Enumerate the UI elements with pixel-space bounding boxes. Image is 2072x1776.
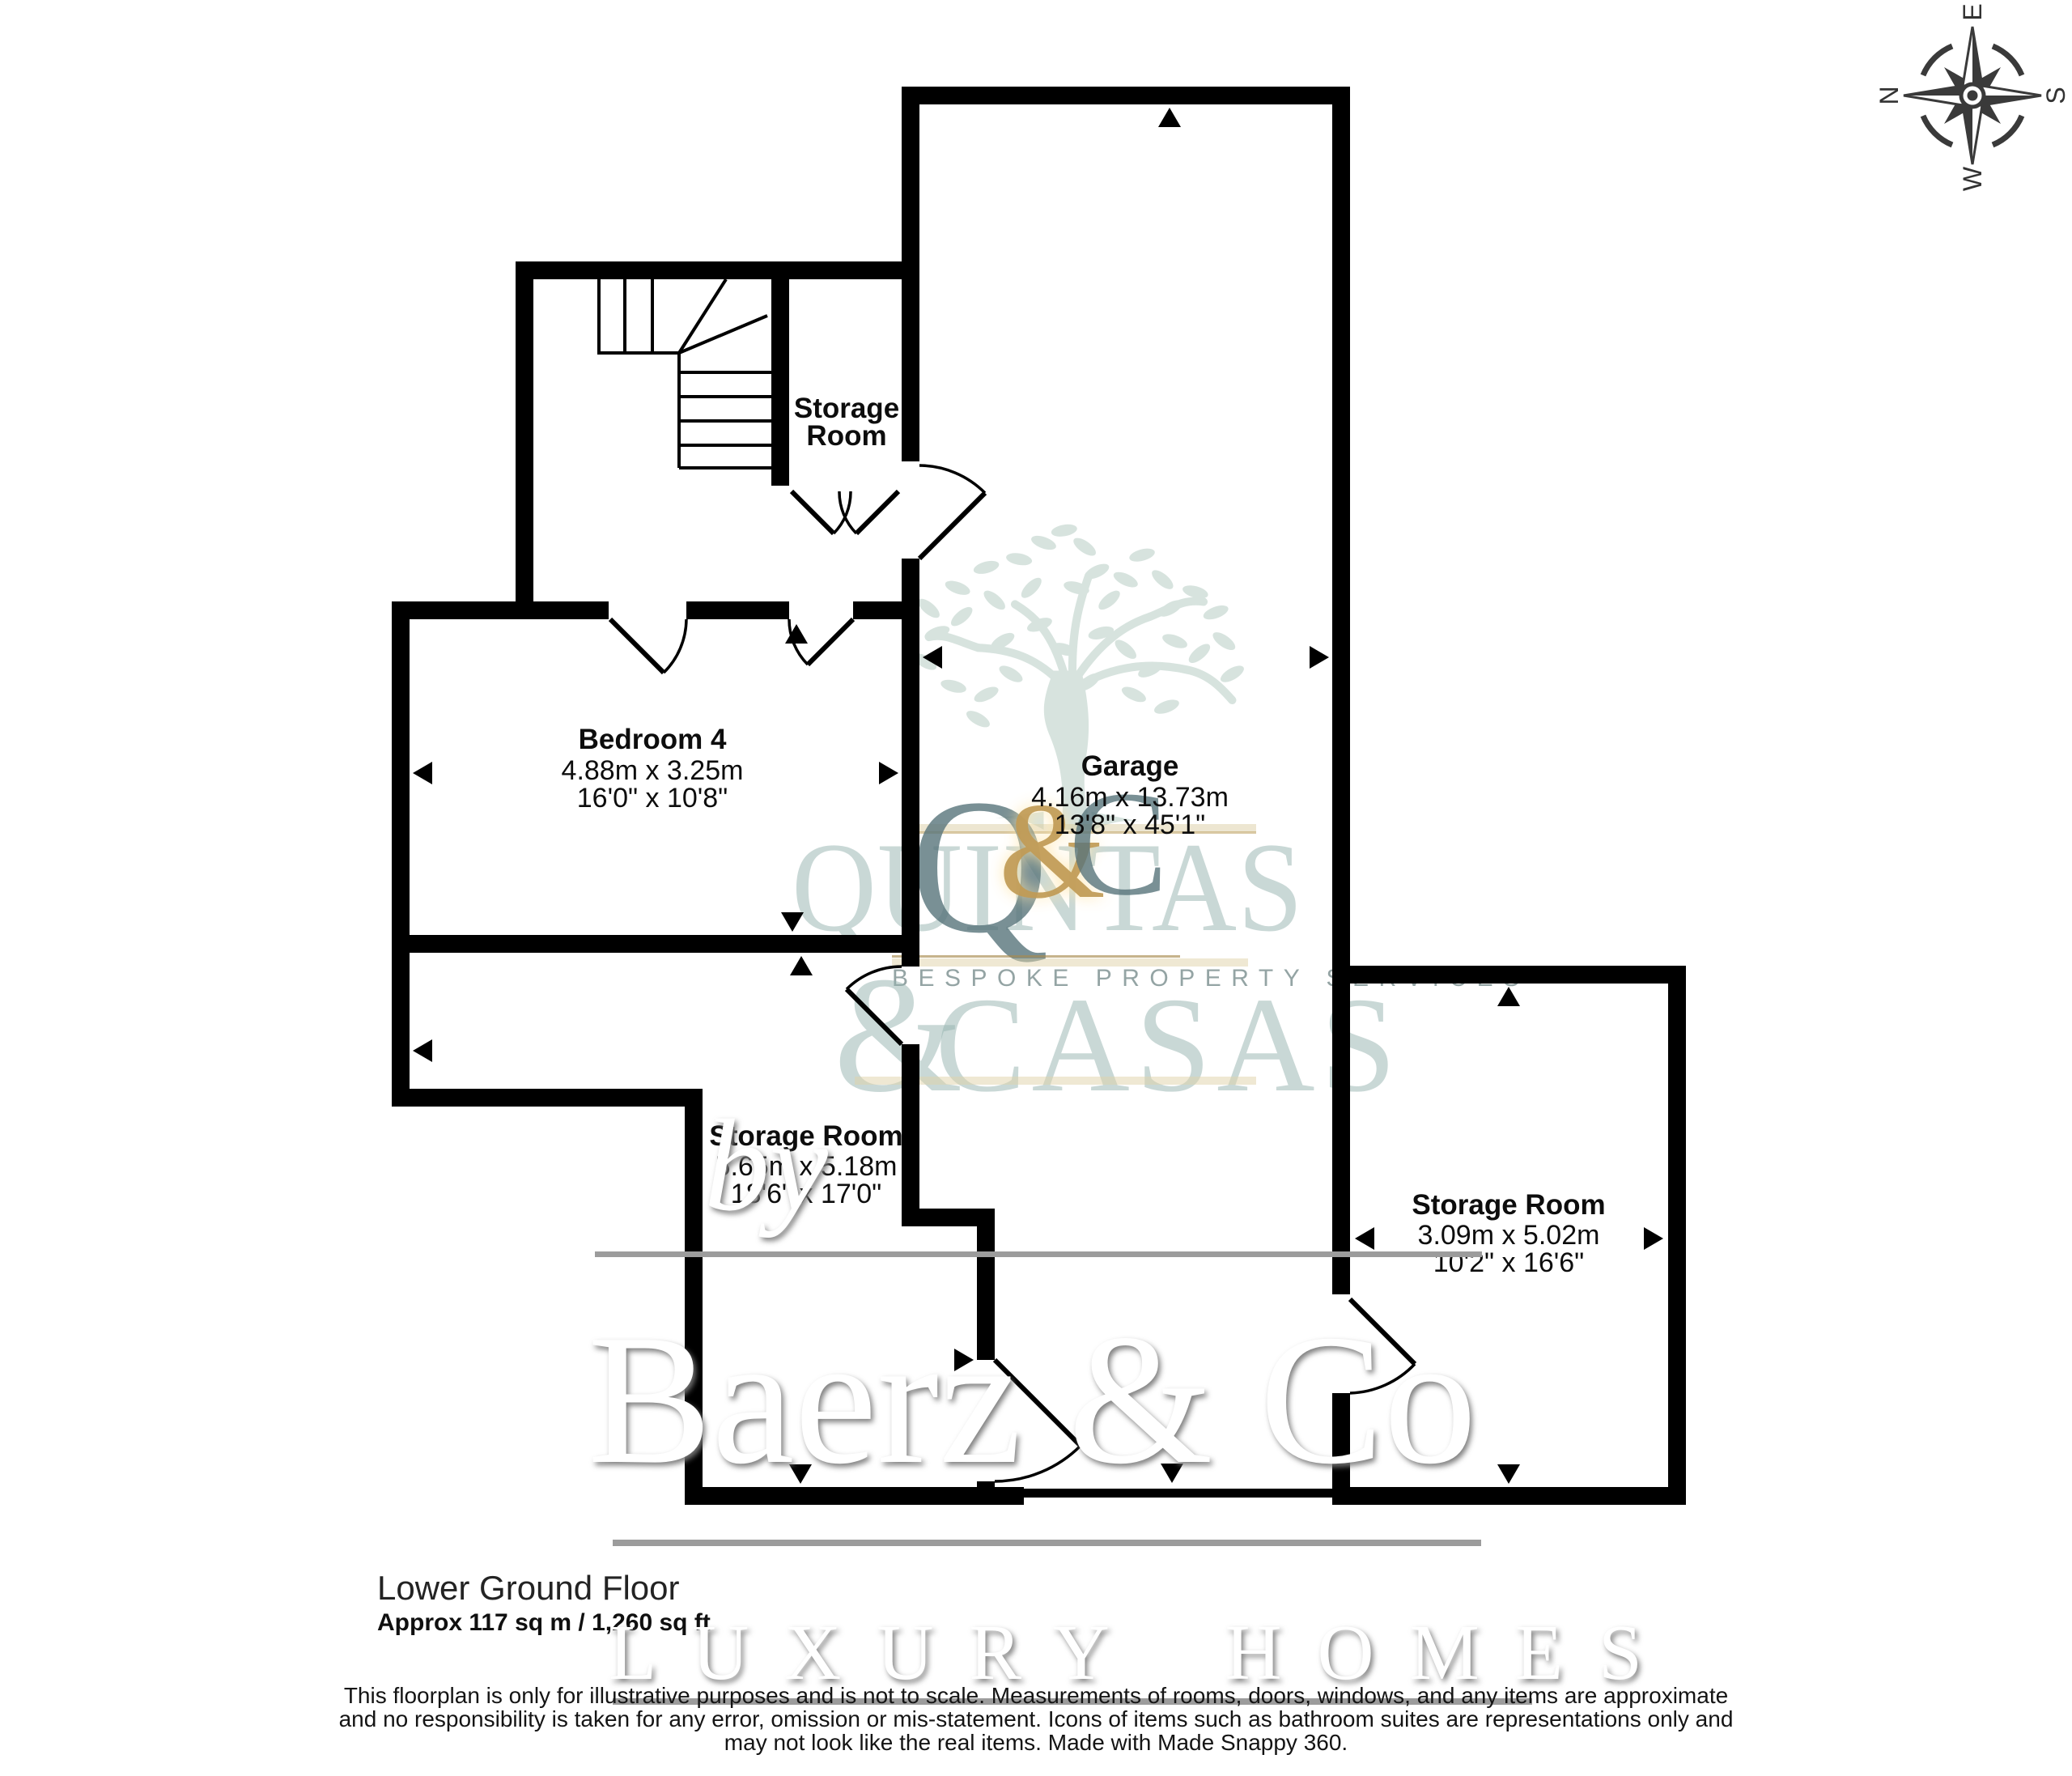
- floor-area: Approx 117 sq m / 1,260 sq ft: [377, 1609, 711, 1637]
- compass-label-e: E: [1958, 3, 1987, 20]
- svg-text:Bedroom 4: Bedroom 4: [579, 724, 727, 755]
- measure-arrow-up-storage-right: [1497, 987, 1520, 1006]
- room-label-storage-right: Storage Room 3.09m x 5.02m 10'2" x 16'6": [1412, 1189, 1605, 1278]
- measure-arrow-down-storage-mid: [789, 1464, 812, 1484]
- door-hall-to-bedroom4: [610, 619, 686, 673]
- svg-text:Garage: Garage: [1081, 750, 1179, 782]
- disclaimer-line-1: This floorplan is only for illustrative …: [227, 1684, 1845, 1707]
- room-label-storage-mid: Storage Room 5.65m x 5.18m 18'6" x 17'0": [709, 1120, 902, 1209]
- measure-arrow-left-bedroom4: [413, 762, 432, 784]
- door-garage-to-storage-mid: [847, 967, 902, 1044]
- measure-arrow-left-garage: [923, 646, 942, 669]
- svg-text:Room: Room: [806, 420, 886, 452]
- measure-arrow-right-garage: [1310, 646, 1329, 669]
- svg-text:16'0" x 10'8": 16'0" x 10'8": [577, 783, 728, 814]
- staircase: [599, 279, 771, 468]
- measure-arrow-down-garage: [1161, 1464, 1183, 1483]
- svg-text:18'6" x 17'0": 18'6" x 17'0": [731, 1179, 881, 1209]
- door-garage-to-storage-right: [1350, 1299, 1415, 1393]
- door-vestibule-to-garage: [919, 465, 985, 559]
- svg-text:4.16m x 13.73m: 4.16m x 13.73m: [1031, 782, 1229, 813]
- measure-arrow-left-storage-right: [1355, 1227, 1374, 1250]
- measure-arrow-up-storage-mid: [790, 956, 813, 975]
- door-storage-mid-to-garage-lower: [995, 1360, 1081, 1481]
- disclaimer-line-2: and no responsibility is taken for any e…: [227, 1707, 1845, 1731]
- compass-rose: N E S W: [1875, 3, 2070, 191]
- grey-rule-2: [613, 1540, 1481, 1546]
- room-label-garage: Garage 4.16m x 13.73m 13'8" x 45'1": [1031, 750, 1229, 840]
- disclaimer-line-3: may not look like the real items. Made w…: [227, 1731, 1845, 1754]
- measure-arrow-right-storage-right: [1644, 1227, 1663, 1250]
- svg-text:13'8" x 45'1": 13'8" x 45'1": [1055, 809, 1205, 840]
- svg-text:3.09m x 5.02m: 3.09m x 5.02m: [1418, 1220, 1600, 1251]
- measure-arrow-right-storage-mid: [954, 1349, 974, 1371]
- svg-text:5.65m x 5.18m: 5.65m x 5.18m: [715, 1151, 898, 1182]
- measure-arrow-left-storage-mid: [413, 1039, 432, 1062]
- compass-label-n: N: [1875, 86, 1904, 104]
- compass-label-w: W: [1958, 166, 1987, 191]
- grey-rule-1: [595, 1251, 1482, 1257]
- svg-text:Storage Room: Storage Room: [1412, 1189, 1605, 1221]
- svg-text:Storage Room: Storage Room: [709, 1120, 902, 1152]
- measure-arrow-right-bedroom4: [879, 762, 898, 784]
- floorplan-page: QUINTAS Q & C BESPOKE PROPERTY SERVICES …: [0, 0, 2072, 1776]
- floor-title: Lower Ground Floor: [377, 1569, 680, 1608]
- measure-arrow-up-garage: [1158, 108, 1181, 127]
- measure-arrow-down-bedroom4: [781, 912, 804, 932]
- compass-label-s: S: [2041, 87, 2070, 104]
- measure-arrow-down-storage-right: [1497, 1464, 1520, 1484]
- floorplan-canvas: Storage Room Bedroom 4 4.88m x 3.25m 16'…: [0, 0, 2072, 1776]
- room-label-storage-top: Storage Room: [794, 393, 899, 452]
- disclaimer: This floorplan is only for illustrative …: [227, 1684, 1845, 1754]
- garage-door-opening-line: [1024, 1489, 1332, 1498]
- svg-text:4.88m x 3.25m: 4.88m x 3.25m: [562, 755, 744, 786]
- room-label-bedroom4: Bedroom 4 4.88m x 3.25m 16'0" x 10'8": [562, 724, 744, 814]
